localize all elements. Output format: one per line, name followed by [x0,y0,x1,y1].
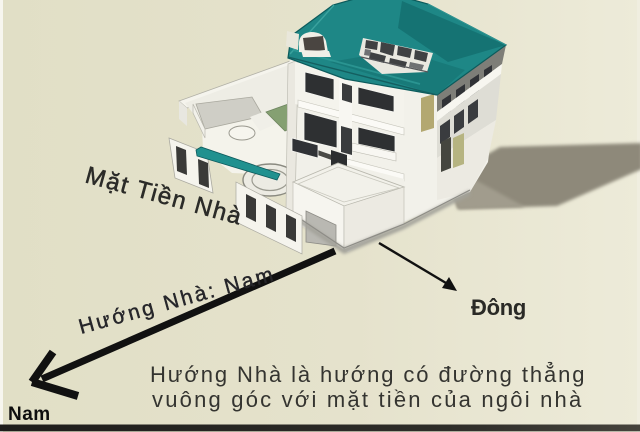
svg-text:Nam: Nam [8,404,51,425]
svg-text:Đông: Đông [471,295,526,320]
svg-text:vuông góc với mặt tiền của ngô: vuông góc với mặt tiền của ngôi nhà [152,387,583,412]
svg-text:Hướng Nhà là hướng có đường th: Hướng Nhà là hướng có đường thẳng [150,362,586,387]
